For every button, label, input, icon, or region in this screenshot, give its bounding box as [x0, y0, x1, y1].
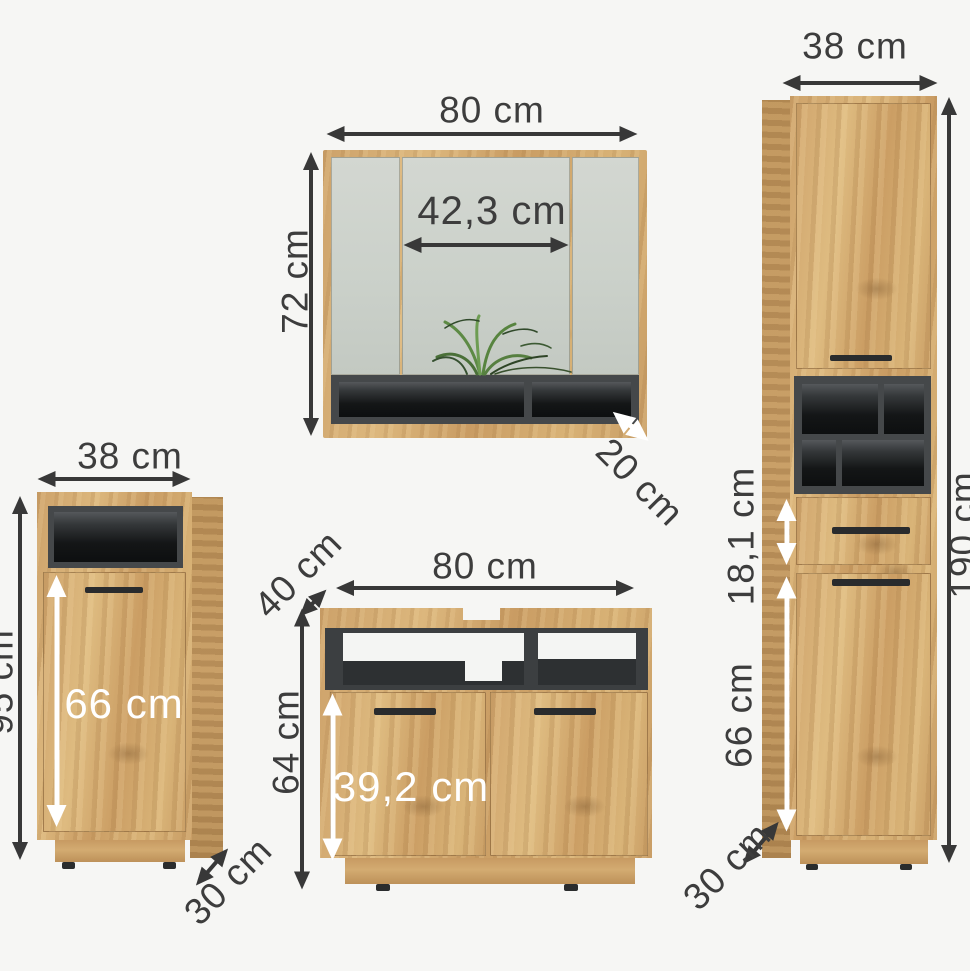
side-cabinet-open-shelf [48, 506, 183, 568]
tall-door-height-label: 66 cm [721, 662, 758, 768]
tall-width-label: 38 cm [802, 28, 908, 65]
side-shelf-compartment [54, 512, 177, 562]
side-cabinet-foot-left [62, 862, 75, 869]
side-door-height-label: 66 cm [64, 683, 183, 725]
tall-width-arrow [799, 81, 922, 85]
mirror-inner-width-arrow [420, 243, 553, 247]
vanity-width-arrow [352, 586, 618, 590]
side-cabinet-foot-right [163, 862, 176, 869]
tall-shelf-compartment-bottom-right [842, 440, 924, 486]
tall-door-height-arrow [785, 597, 790, 812]
tall-shelf-compartment-top-right [884, 384, 924, 434]
mirror-width-label: 80 cm [439, 92, 545, 129]
vanity-door-right-handle [534, 708, 596, 715]
vanity-door-left-handle [374, 708, 436, 715]
tall-cabinet-foot-right [900, 864, 912, 870]
tall-cabinet-lower-door [796, 573, 931, 836]
tall-shelf-compartment-bottom-left [802, 440, 836, 486]
tall-cabinet-upper-door [796, 103, 931, 369]
vanity-door-right [490, 692, 648, 856]
vanity-shelf-open-back-left [343, 633, 524, 661]
vanity-depth-arrow [309, 599, 316, 606]
mirror-panel-right [572, 157, 639, 375]
tall-shelf-compartment-top-left [802, 384, 878, 434]
side-cabinet-plinth [55, 840, 185, 862]
side-cabinet-side-panel [190, 497, 223, 858]
vanity-width-label: 80 cm [432, 548, 538, 585]
vanity-shelf-siphon-cutout [465, 659, 502, 681]
vanity-shelf-open-back-right [538, 633, 636, 659]
tall-drawer-height-label: 18,1 cm [723, 467, 760, 606]
side-width-label: 38 cm [77, 438, 183, 475]
tall-cabinet-foot-left [806, 864, 818, 870]
mirror-height-label: 72 cm [277, 228, 314, 334]
tall-cabinet-plinth [800, 840, 928, 864]
tall-cabinet-lower-door-handle [832, 579, 910, 586]
mirror-panel-left [331, 157, 400, 375]
plant-reflection [425, 312, 575, 376]
tall-cabinet-drawer-handle [832, 527, 910, 534]
vanity-shelf-compartment-left [343, 633, 524, 685]
mirror-cabinet-open-shelf [331, 375, 639, 424]
side-width-arrow [54, 477, 175, 481]
side-door-height-arrow [55, 595, 60, 807]
vanity-open-shelf [325, 628, 648, 690]
vanity-foot-left [376, 884, 390, 891]
vanity-height-label: 64 cm [268, 689, 305, 795]
vanity-top-siphon-notch [463, 606, 500, 620]
mirror-shelf-compartment-left [339, 382, 524, 417]
mirror-width-arrow [343, 132, 622, 136]
mirror-inner-width-label: 42,3 cm [417, 191, 566, 231]
vanity-shelf-compartment-right [538, 633, 636, 685]
side-cabinet-door-handle [85, 587, 143, 593]
tall-height-label: 190 cm [945, 471, 970, 598]
tall-drawer-height-arrow [785, 519, 790, 545]
bathroom-set-dimension-diagram: 80 cm 72 cm 42,3 cm 20 cm 38 cm 95 cm 66… [0, 0, 970, 971]
tall-cabinet-upper-door-handle [830, 355, 892, 361]
tall-cabinet-open-shelf [794, 376, 931, 494]
vanity-foot-right [564, 884, 578, 891]
vanity-door-height-label: 39,2 cm [333, 766, 489, 808]
vanity-plinth [345, 858, 635, 884]
tall-depth-label: 30 cm [677, 816, 778, 917]
side-height-label: 95 cm [0, 629, 19, 735]
